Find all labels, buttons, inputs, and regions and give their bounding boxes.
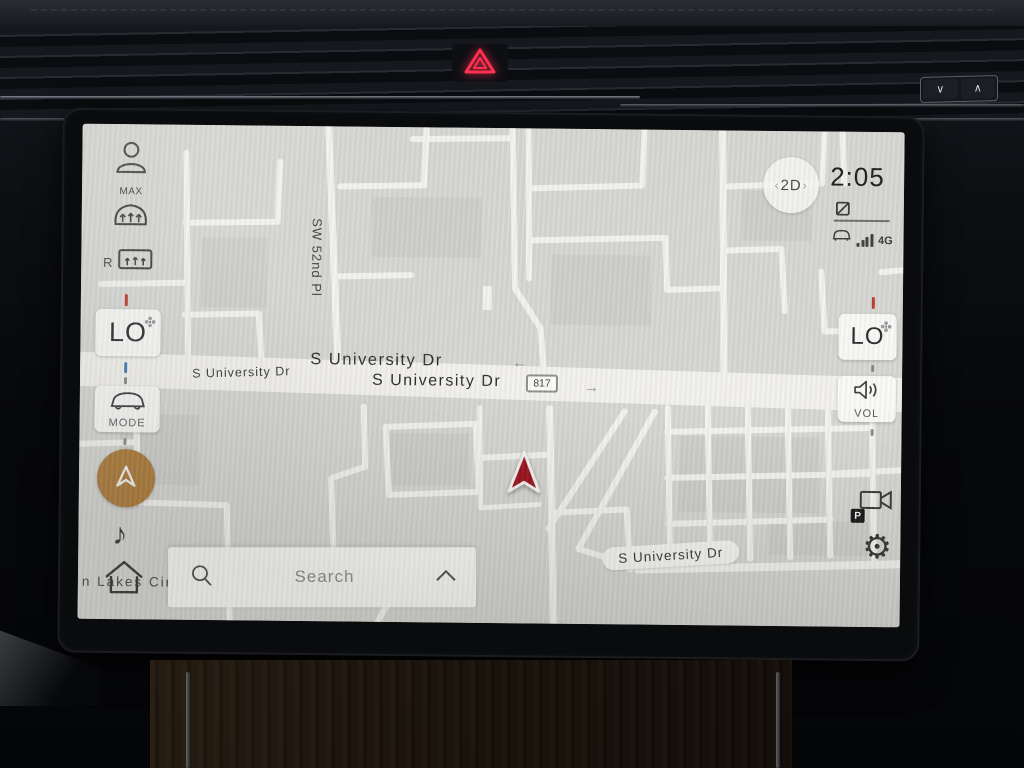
rail-dash [123,438,126,445]
highway-number: 817 [533,377,551,389]
music-note-icon: ♪ [112,518,127,551]
gear-icon: ⚙ [862,528,892,565]
home-button[interactable] [100,554,149,603]
media-button[interactable]: ♪ [112,520,127,550]
hvac-mode-button[interactable]: MODE [94,386,159,433]
clock: 2:05 [830,162,885,194]
hazard-lights-button[interactable] [452,44,508,82]
search-icon [190,563,214,592]
street-label-university-left: S University Dr [192,364,291,380]
camera-icon: P [855,486,895,521]
front-defrost-icon [110,197,152,232]
direction-arrow-right-icon: → [584,379,599,396]
map-view-2d-button[interactable]: ‹ 2D › [763,157,820,214]
chevron-down-icon: ∨ [936,84,944,95]
rail-dash [124,377,127,384]
chevron-up-icon: ∧ [974,83,982,94]
navigation-app-button[interactable] [97,449,156,508]
max-defrost-button[interactable]: MAX [108,186,154,232]
temp-scale-hot-tick [872,297,875,309]
direction-arrow-left-icon: ← [512,354,527,371]
signal-bars-icon [856,234,873,247]
infotainment-screen: SW 52nd Pl S University Dr S University … [57,108,925,662]
parking-badge: P [851,509,865,523]
profile-button[interactable] [110,138,152,180]
connected-car-icon [831,228,851,247]
hazard-triangle-icon [463,47,497,80]
driver-temp-value: LO [109,317,147,348]
search-bar[interactable] [168,547,476,607]
temp-scale-hot-tick [125,294,128,306]
bubble-text: S University Dr [618,545,724,566]
rear-defrost-button[interactable]: R [99,244,157,281]
rear-defrost-icon [117,246,153,279]
console-trim [186,672,190,768]
person-icon [112,138,150,181]
volume-label: VOL [854,407,879,419]
temp-scale-cold-tick [124,362,127,373]
connectivity-status: 4G [831,228,892,248]
rocker-up-button[interactable]: ∧ [961,78,996,99]
fan-icon [881,319,892,337]
speaker-icon [852,378,882,405]
center-console-panel [150,660,792,768]
driver-temp-button[interactable]: LO [95,309,160,357]
chevron-right-icon: › [803,178,808,192]
rear-label: R [103,254,113,269]
volume-button[interactable]: VOL [838,376,896,423]
vehicle-position-marker [503,448,546,501]
chrome-trim [620,104,1024,107]
parking-camera-button[interactable]: P [855,486,895,521]
passenger-temp-button[interactable]: LO [838,314,896,361]
physical-rocker-switches: ∨ ∧ [920,75,998,103]
view-mode-label: 2D [780,177,801,194]
chevron-left-icon: ‹ [774,178,779,192]
mode-label: MODE [109,416,146,428]
rail-dash [871,365,874,372]
max-label: MAX [119,186,142,197]
chevron-up-icon[interactable] [435,568,457,587]
street-label-university-lower: S University Dr [372,372,501,391]
fan-icon [145,314,156,332]
car-icon [108,389,146,414]
highway-817-shield: 817 [526,374,558,392]
street-label-university-upper: S University Dr [310,350,443,370]
rocker-down-button[interactable]: ∨ [923,79,958,100]
search-input[interactable] [214,567,435,587]
street-label-sw52nd: SW 52nd Pl [309,218,325,297]
settings-button[interactable]: ⚙ [862,530,892,563]
home-icon [102,554,146,601]
chrome-trim [0,96,640,99]
navigation-arrow-icon [110,461,142,496]
rail-dash [870,429,873,436]
network-label: 4G [878,236,893,247]
console-trim [776,672,780,768]
display-area: SW 52nd Pl S University Dr S University … [78,124,905,628]
dashboard-top-trim [0,0,1024,26]
